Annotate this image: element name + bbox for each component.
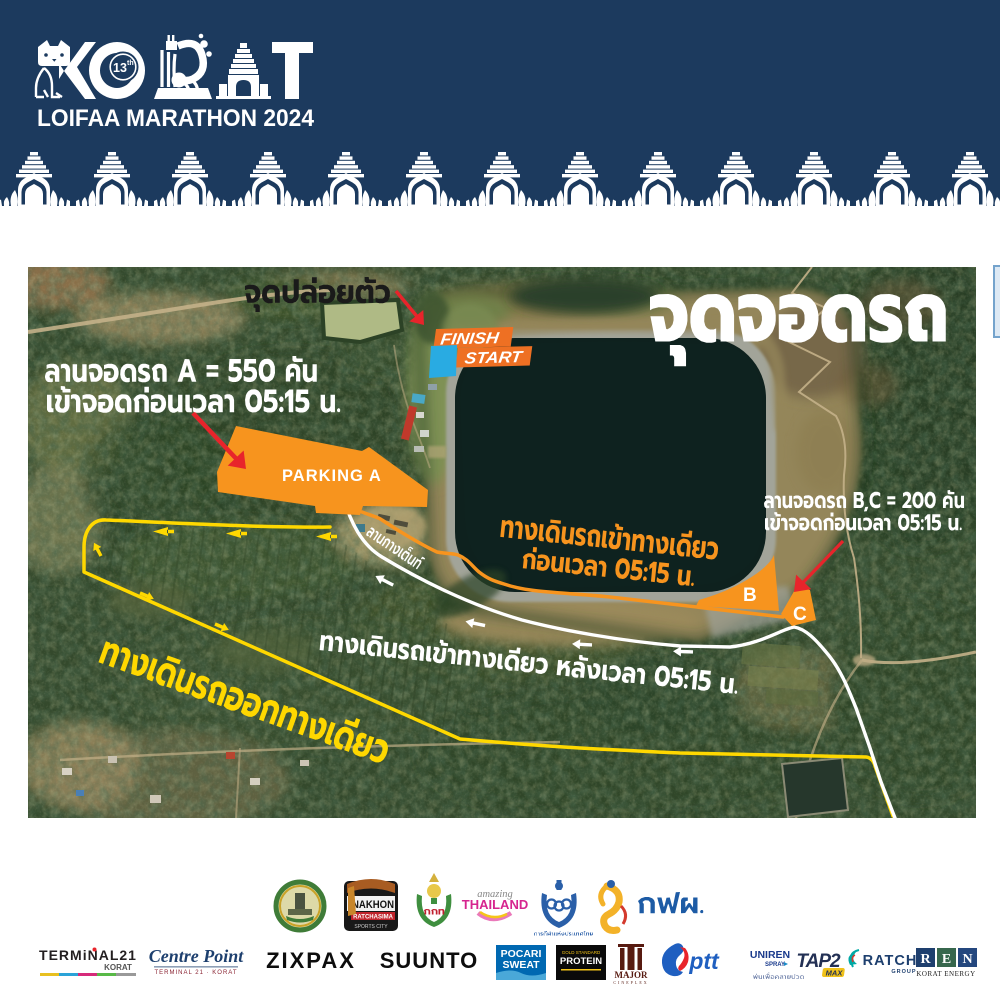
svg-text:PARKING A: PARKING A <box>282 467 382 485</box>
svg-text:SPORTS CITY: SPORTS CITY <box>354 924 388 930</box>
svg-text:KORAT: KORAT <box>104 963 132 972</box>
svg-text:RATCHASIMA: RATCHASIMA <box>353 915 394 921</box>
svg-text:TERMiNAL21: TERMiNAL21 <box>39 947 137 963</box>
svg-text:THAILAND: THAILAND <box>462 897 528 912</box>
svg-text:SWEAT: SWEAT <box>502 959 540 971</box>
svg-text:START: START <box>463 348 524 367</box>
svg-text:Centre Point: Centre Point <box>149 946 245 966</box>
svg-text:LOIFAA MARATHON 2024: LOIFAA MARATHON 2024 <box>37 105 314 132</box>
svg-text:CINEPLEX: CINEPLEX <box>613 980 648 985</box>
svg-text:ptt: ptt <box>688 948 720 974</box>
svg-text:MAX: MAX <box>826 969 844 978</box>
svg-text:TERMINAL 21 · KORAT: TERMINAL 21 · KORAT <box>154 970 237 976</box>
svg-text:KORAT ENERGY: KORAT ENERGY <box>916 970 975 978</box>
svg-text:th: th <box>127 60 134 67</box>
svg-text:E: E <box>942 952 951 967</box>
svg-text:NAKHON: NAKHON <box>352 899 394 911</box>
svg-text:SUUNTO: SUUNTO <box>380 948 479 973</box>
svg-text:ZIXPAX: ZIXPAX <box>266 948 356 973</box>
svg-text:C: C <box>793 604 807 625</box>
svg-text:13: 13 <box>113 61 127 75</box>
svg-text:GOLD STANDARD: GOLD STANDARD <box>562 950 601 955</box>
svg-text:PROTEIN: PROTEIN <box>560 956 602 967</box>
svg-text:MAJOR: MAJOR <box>615 970 648 980</box>
svg-text:N: N <box>962 952 972 967</box>
svg-text:SPRAY: SPRAY <box>765 962 785 968</box>
svg-text:GROUP: GROUP <box>891 969 916 975</box>
svg-text:R: R <box>920 952 931 967</box>
svg-text:B: B <box>743 585 757 606</box>
svg-text:UNIREN: UNIREN <box>750 949 790 961</box>
svg-text:RATCH: RATCH <box>863 953 918 969</box>
